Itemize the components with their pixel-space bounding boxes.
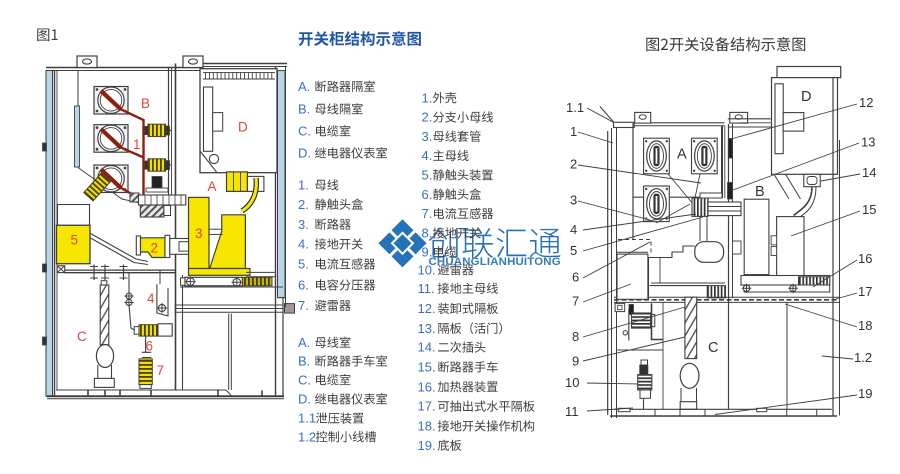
svg-text:A.: A. bbox=[298, 79, 310, 94]
svg-text:14.: 14. bbox=[418, 340, 436, 355]
svg-text:B: B bbox=[141, 96, 150, 111]
svg-text:3.: 3. bbox=[422, 129, 433, 144]
svg-text:C: C bbox=[708, 340, 718, 356]
svg-text:6.: 6. bbox=[422, 187, 433, 202]
svg-text:1.2: 1.2 bbox=[854, 350, 872, 365]
svg-text:17: 17 bbox=[858, 284, 872, 299]
svg-text:15: 15 bbox=[862, 202, 876, 217]
svg-text:D.: D. bbox=[298, 392, 311, 407]
svg-text:8.: 8. bbox=[422, 226, 433, 241]
svg-text:B.: B. bbox=[298, 102, 310, 117]
svg-text:10: 10 bbox=[565, 375, 579, 390]
svg-text:1.1: 1.1 bbox=[566, 100, 584, 115]
svg-text:1.1: 1.1 bbox=[298, 411, 316, 426]
svg-text:6: 6 bbox=[572, 270, 579, 285]
svg-text:5.: 5. bbox=[298, 257, 309, 272]
svg-text:7.: 7. bbox=[298, 298, 309, 313]
svg-text:9.: 9. bbox=[422, 245, 433, 260]
svg-text:4.: 4. bbox=[298, 237, 309, 252]
svg-text:7: 7 bbox=[572, 294, 579, 309]
svg-text:A: A bbox=[677, 147, 687, 163]
svg-text:C: C bbox=[77, 329, 87, 344]
svg-text:7: 7 bbox=[157, 363, 165, 378]
svg-text:14: 14 bbox=[862, 165, 876, 180]
svg-text:12.: 12. bbox=[418, 301, 436, 316]
svg-text:5.: 5. bbox=[422, 168, 433, 183]
svg-text:C.: C. bbox=[298, 124, 311, 139]
svg-text:A: A bbox=[208, 179, 217, 194]
svg-text:4.: 4. bbox=[422, 148, 433, 163]
svg-text:A.: A. bbox=[298, 335, 310, 350]
svg-text:5: 5 bbox=[570, 243, 577, 258]
svg-text:1.: 1. bbox=[422, 90, 433, 105]
svg-text:2.: 2. bbox=[422, 110, 433, 125]
svg-text:7.: 7. bbox=[422, 206, 433, 221]
svg-text:19.: 19. bbox=[418, 438, 436, 453]
svg-text:6.: 6. bbox=[298, 278, 309, 293]
svg-text:12: 12 bbox=[859, 95, 873, 110]
svg-text:13.: 13. bbox=[418, 321, 436, 336]
svg-text:18: 18 bbox=[858, 318, 872, 333]
svg-text:B: B bbox=[755, 184, 765, 200]
svg-text:6: 6 bbox=[146, 339, 154, 354]
svg-text:C.: C. bbox=[298, 372, 311, 387]
svg-text:5: 5 bbox=[71, 233, 79, 248]
svg-text:4: 4 bbox=[570, 222, 577, 237]
svg-text:16: 16 bbox=[858, 251, 872, 266]
svg-text:1: 1 bbox=[133, 137, 141, 152]
svg-text:11: 11 bbox=[565, 404, 579, 419]
svg-text:1.2: 1.2 bbox=[298, 429, 316, 444]
svg-text:8: 8 bbox=[572, 329, 579, 344]
svg-text:D.: D. bbox=[298, 146, 311, 161]
svg-text:2.: 2. bbox=[298, 197, 309, 212]
svg-text:3: 3 bbox=[195, 226, 203, 241]
svg-text:4: 4 bbox=[147, 291, 155, 306]
svg-text:10.: 10. bbox=[418, 262, 436, 277]
svg-text:3: 3 bbox=[570, 192, 577, 207]
svg-text:1.: 1. bbox=[298, 178, 309, 193]
svg-text:D: D bbox=[801, 89, 811, 105]
svg-text:B.: B. bbox=[298, 354, 310, 369]
svg-text:2: 2 bbox=[570, 157, 577, 172]
svg-text:16.: 16. bbox=[418, 379, 436, 394]
svg-text:D: D bbox=[238, 120, 248, 135]
svg-text:17.: 17. bbox=[418, 399, 436, 414]
svg-text:13: 13 bbox=[861, 135, 875, 150]
svg-text:3.: 3. bbox=[298, 217, 309, 232]
svg-text:11.: 11. bbox=[418, 281, 435, 296]
svg-text:1: 1 bbox=[570, 124, 577, 139]
svg-text:19: 19 bbox=[858, 386, 872, 401]
svg-text:9: 9 bbox=[572, 354, 579, 369]
svg-text:2: 2 bbox=[151, 241, 159, 256]
svg-text:18.: 18. bbox=[418, 419, 436, 434]
svg-text:15.: 15. bbox=[418, 360, 436, 375]
